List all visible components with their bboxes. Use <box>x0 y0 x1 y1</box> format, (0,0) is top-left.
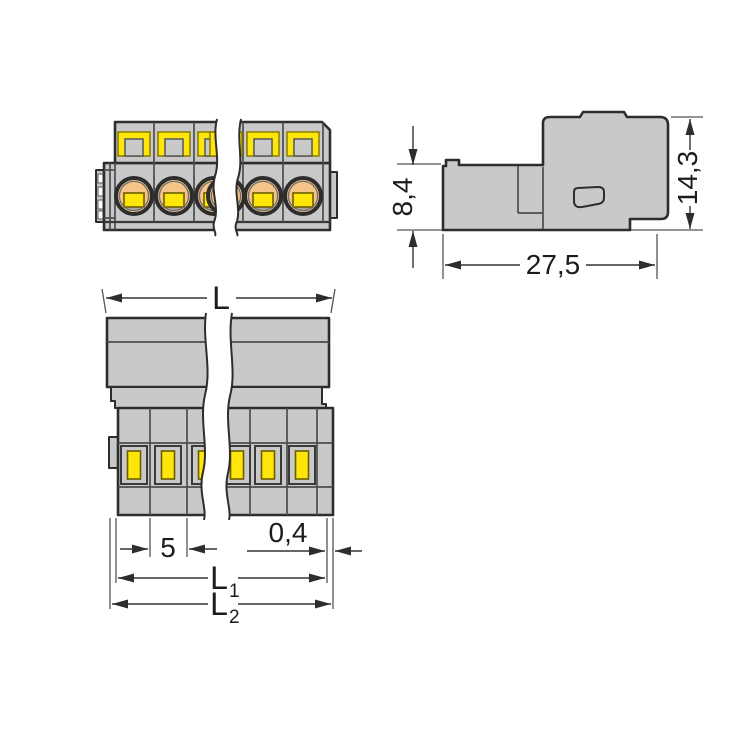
pin-slot <box>121 446 147 484</box>
dim-label-8-4: 8,4 <box>387 178 418 217</box>
dim-pitch: 5 <box>120 518 217 563</box>
dim-front-height: 8,4 <box>387 126 441 268</box>
side-latch-recess <box>574 187 604 207</box>
front-break-line <box>214 119 241 236</box>
dim-label-0-4: 0,4 <box>269 517 308 548</box>
side-body <box>443 112 668 230</box>
technical-drawing-canvas: 8,4 14,3 27,5 <box>0 0 750 750</box>
dim-overall-length: L <box>102 280 335 316</box>
dim-label-27-5: 27,5 <box>526 249 581 280</box>
dim-end-offset: 0,4 <box>247 517 362 609</box>
dim-label-14-3: 14,3 <box>672 151 703 206</box>
dim-label-L2-base: L <box>210 586 228 622</box>
side-view: 8,4 14,3 27,5 <box>387 112 703 280</box>
dim-label-L2-sub: 2 <box>229 607 240 628</box>
dim-depth: 27,5 <box>443 234 657 280</box>
front-view <box>96 119 337 236</box>
pin-slot <box>155 446 181 484</box>
pin-slot <box>255 446 281 484</box>
top-view: L 5 0,4 L 1 <box>102 280 362 628</box>
dim-label-5: 5 <box>160 532 176 563</box>
dim-total-height: 14,3 <box>671 117 703 229</box>
pin-slot <box>289 446 315 484</box>
dim-label-L: L <box>212 280 230 316</box>
dim-label-L1-sub: 1 <box>229 581 240 602</box>
dimension-drawing: 8,4 14,3 27,5 <box>0 0 750 750</box>
